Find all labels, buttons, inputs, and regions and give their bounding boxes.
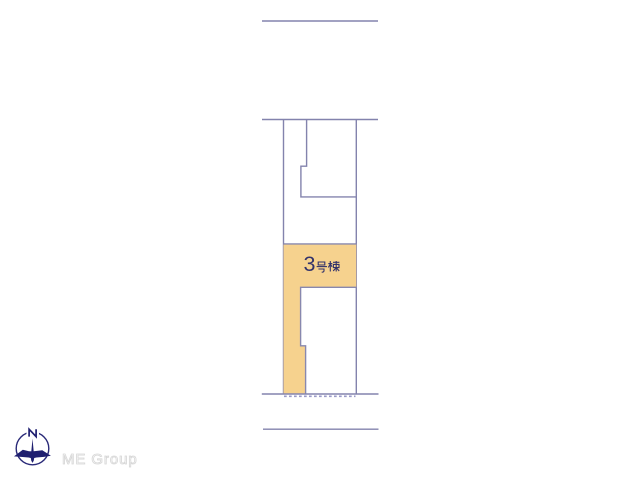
svg-text:3: 3 bbox=[304, 252, 316, 276]
svg-text:ME Group: ME Group bbox=[62, 451, 138, 468]
